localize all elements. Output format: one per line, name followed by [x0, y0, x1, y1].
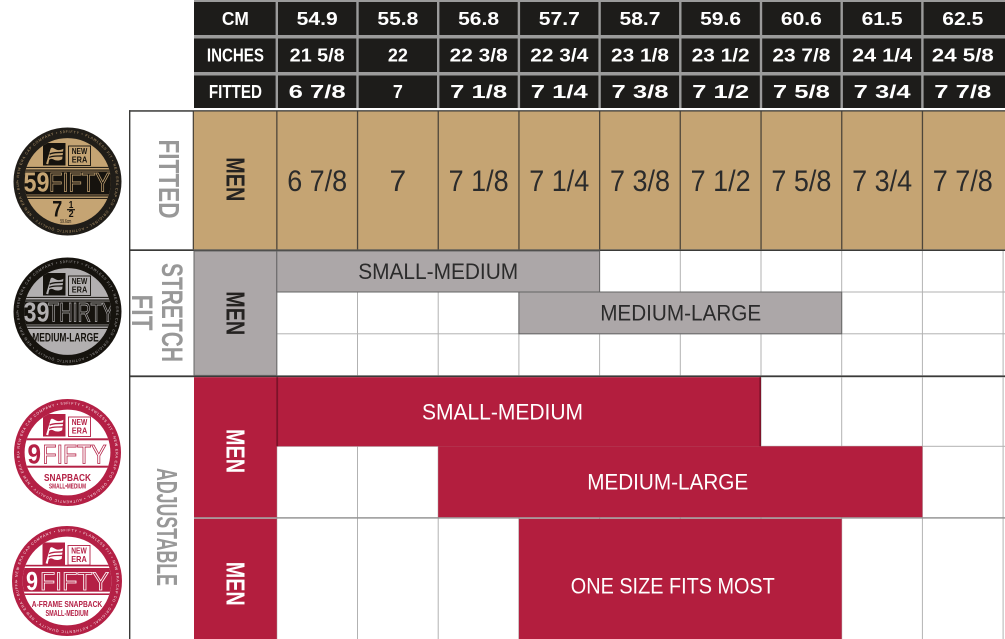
- svg-text:A-FRAME SNAPBACK: A-FRAME SNAPBACK: [32, 599, 103, 609]
- svg-text:MEN: MEN: [220, 562, 250, 606]
- svg-text:CM: CM: [222, 9, 249, 29]
- svg-text:6 7/8: 6 7/8: [289, 82, 346, 102]
- svg-text:MEN: MEN: [220, 429, 250, 473]
- svg-text:INCHES: INCHES: [207, 46, 264, 66]
- svg-text:ERA: ERA: [72, 285, 88, 295]
- svg-text:7 5/8: 7 5/8: [771, 165, 831, 198]
- svg-text:7: 7: [393, 82, 403, 102]
- svg-text:59: 59: [24, 166, 50, 197]
- svg-text:FITTED: FITTED: [152, 140, 184, 219]
- svg-text:7 3/8: 7 3/8: [610, 165, 670, 198]
- svg-text:9: 9: [26, 566, 38, 596]
- svg-text:SMALL-MEDIUM: SMALL-MEDIUM: [358, 259, 518, 284]
- svg-text:23 1/8: 23 1/8: [611, 46, 669, 66]
- svg-text:56.8: 56.8: [458, 9, 499, 29]
- svg-text:FIFTY: FIFTY: [40, 568, 109, 596]
- svg-text:FIT: FIT: [125, 295, 158, 331]
- svg-text:7 1/4: 7 1/4: [531, 82, 588, 102]
- svg-text:MEDIUM-LARGE: MEDIUM-LARGE: [600, 301, 761, 326]
- svg-text:61.5: 61.5: [862, 9, 903, 29]
- svg-text:24 5/8: 24 5/8: [932, 46, 994, 66]
- svg-text:55.8: 55.8: [377, 9, 418, 29]
- svg-text:62.5: 62.5: [942, 9, 983, 29]
- svg-text:ERA: ERA: [71, 554, 87, 564]
- svg-text:ADJUSTABLE: ADJUSTABLE: [150, 468, 182, 586]
- svg-text:ERA: ERA: [72, 426, 88, 436]
- svg-text:58.7: 58.7: [620, 9, 661, 29]
- svg-text:MEDIUM-LARGE: MEDIUM-LARGE: [32, 332, 99, 344]
- svg-text:9: 9: [28, 439, 42, 470]
- svg-text:ERA: ERA: [72, 155, 88, 165]
- svg-text:SMALL-MEDIUM: SMALL-MEDIUM: [46, 609, 89, 618]
- svg-text:SMALL-MEDIUM: SMALL-MEDIUM: [422, 399, 583, 424]
- svg-text:7 1/2: 7 1/2: [692, 82, 749, 102]
- svg-text:MEN: MEN: [220, 157, 250, 201]
- svg-text:7 3/4: 7 3/4: [852, 165, 912, 198]
- svg-text:SMALL•MEDIUM: SMALL•MEDIUM: [49, 484, 86, 491]
- svg-text:7: 7: [390, 165, 407, 198]
- svg-text:STRETCH: STRETCH: [155, 263, 188, 362]
- svg-text:24 1/4: 24 1/4: [852, 46, 912, 66]
- svg-text:7 3/8: 7 3/8: [612, 82, 669, 102]
- svg-text:7 5/8: 7 5/8: [773, 82, 830, 102]
- svg-text:ONE SIZE FITS MOST: ONE SIZE FITS MOST: [571, 574, 775, 599]
- svg-text:22: 22: [388, 46, 408, 66]
- svg-text:59.6: 59.6: [700, 9, 741, 29]
- svg-text:21 5/8: 21 5/8: [290, 46, 345, 66]
- svg-text:59.6cm: 59.6cm: [60, 219, 71, 225]
- svg-text:54.9: 54.9: [297, 9, 338, 29]
- svg-text:FITTED: FITTED: [209, 82, 262, 102]
- svg-text:FIFTY: FIFTY: [49, 167, 110, 197]
- svg-text:7: 7: [52, 197, 62, 222]
- svg-text:7 1/8: 7 1/8: [450, 82, 507, 102]
- svg-text:FIFTY: FIFTY: [43, 440, 107, 470]
- svg-text:7 1/8: 7 1/8: [449, 165, 509, 198]
- svg-text:MEN: MEN: [220, 291, 250, 335]
- svg-text:7 3/4: 7 3/4: [854, 82, 911, 102]
- svg-text:23 7/8: 23 7/8: [772, 46, 830, 66]
- svg-text:23 1/2: 23 1/2: [692, 46, 750, 66]
- svg-text:MEDIUM-LARGE: MEDIUM-LARGE: [587, 469, 748, 494]
- svg-text:THIRTY: THIRTY: [48, 297, 114, 327]
- svg-text:7 7/8: 7 7/8: [934, 82, 991, 102]
- svg-text:SNAPBACK: SNAPBACK: [44, 472, 91, 484]
- svg-text:39: 39: [24, 296, 50, 327]
- svg-text:7 1/4: 7 1/4: [529, 165, 589, 198]
- svg-text:60.6: 60.6: [781, 9, 822, 29]
- svg-text:7 1/2: 7 1/2: [691, 165, 751, 198]
- svg-text:22 3/8: 22 3/8: [450, 46, 508, 66]
- svg-text:22 3/4: 22 3/4: [530, 46, 588, 66]
- svg-text:6 7/8: 6 7/8: [287, 165, 347, 198]
- svg-text:57.7: 57.7: [539, 9, 580, 29]
- svg-text:7 7/8: 7 7/8: [933, 165, 993, 198]
